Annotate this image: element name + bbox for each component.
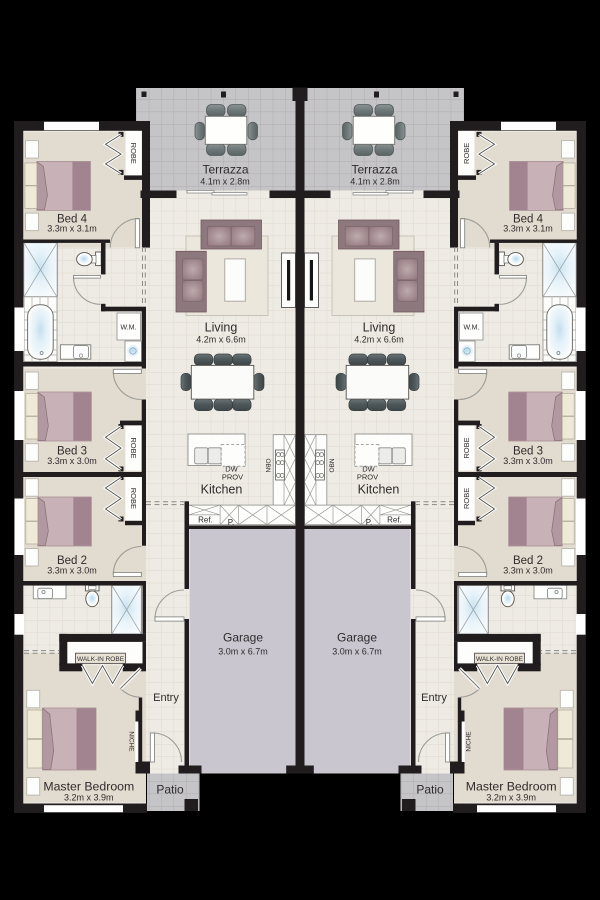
svg-text:Entry: Entry — [421, 692, 447, 704]
svg-text:4.1m x 2.8m: 4.1m x 2.8m — [200, 177, 250, 187]
svg-text:3.3m x 3.0m: 3.3m x 3.0m — [503, 456, 553, 466]
svg-text:Living: Living — [363, 321, 396, 335]
svg-text:3.0m x 6.7m: 3.0m x 6.7m — [218, 647, 268, 657]
svg-text:ROBE: ROBE — [462, 488, 471, 509]
svg-text:Kitchen: Kitchen — [201, 483, 243, 497]
svg-text:Patio: Patio — [416, 783, 444, 797]
svg-text:Garage: Garage — [337, 631, 377, 645]
svg-text:Ref.: Ref. — [387, 516, 402, 525]
svg-text:ROBE: ROBE — [462, 437, 471, 458]
svg-text:3.2m x 3.9m: 3.2m x 3.9m — [486, 792, 536, 802]
svg-text:NICHE: NICHE — [128, 731, 135, 752]
svg-text:PROV: PROV — [222, 473, 243, 482]
svg-text:3.3m x 3.1m: 3.3m x 3.1m — [47, 224, 97, 234]
svg-text:W.M.: W.M. — [464, 325, 480, 332]
svg-text:WALK-IN ROBE: WALK-IN ROBE — [476, 656, 524, 663]
svg-text:Ref.: Ref. — [198, 516, 213, 525]
svg-text:NICHE: NICHE — [466, 731, 473, 752]
svg-text:Terrazza: Terrazza — [202, 163, 248, 177]
svg-text:3.3m x 3.0m: 3.3m x 3.0m — [503, 566, 553, 576]
svg-text:WALK-IN ROBE: WALK-IN ROBE — [77, 656, 125, 663]
svg-text:P.: P. — [366, 518, 373, 527]
svg-text:3.3m x 3.1m: 3.3m x 3.1m — [503, 224, 553, 234]
svg-text:ROBE: ROBE — [129, 488, 138, 509]
svg-text:Living: Living — [205, 321, 238, 335]
svg-text:OBN: OBN — [264, 458, 271, 472]
svg-text:3.0m x 6.7m: 3.0m x 6.7m — [332, 647, 382, 657]
svg-text:ROBE: ROBE — [129, 437, 138, 458]
svg-text:ROBE: ROBE — [462, 143, 471, 164]
svg-text:Entry: Entry — [153, 692, 179, 704]
svg-text:Patio: Patio — [156, 783, 184, 797]
svg-text:3.3m x 3.0m: 3.3m x 3.0m — [47, 456, 97, 466]
svg-text:Garage: Garage — [223, 631, 263, 645]
svg-text:P.: P. — [228, 518, 235, 527]
svg-text:3.2m x 3.9m: 3.2m x 3.9m — [64, 792, 114, 802]
svg-text:ROBE: ROBE — [129, 143, 138, 164]
svg-text:4.2m x 6.6m: 4.2m x 6.6m — [354, 335, 404, 345]
svg-text:4.1m x 2.8m: 4.1m x 2.8m — [350, 177, 400, 187]
svg-text:PROV: PROV — [357, 473, 378, 482]
svg-text:3.3m x 3.0m: 3.3m x 3.0m — [47, 566, 97, 576]
svg-text:W.M.: W.M. — [121, 325, 137, 332]
svg-text:4.2m x 6.6m: 4.2m x 6.6m — [196, 335, 246, 345]
svg-text:Terrazza: Terrazza — [351, 163, 397, 177]
svg-text:OBN: OBN — [329, 458, 336, 472]
svg-text:Kitchen: Kitchen — [358, 483, 400, 497]
